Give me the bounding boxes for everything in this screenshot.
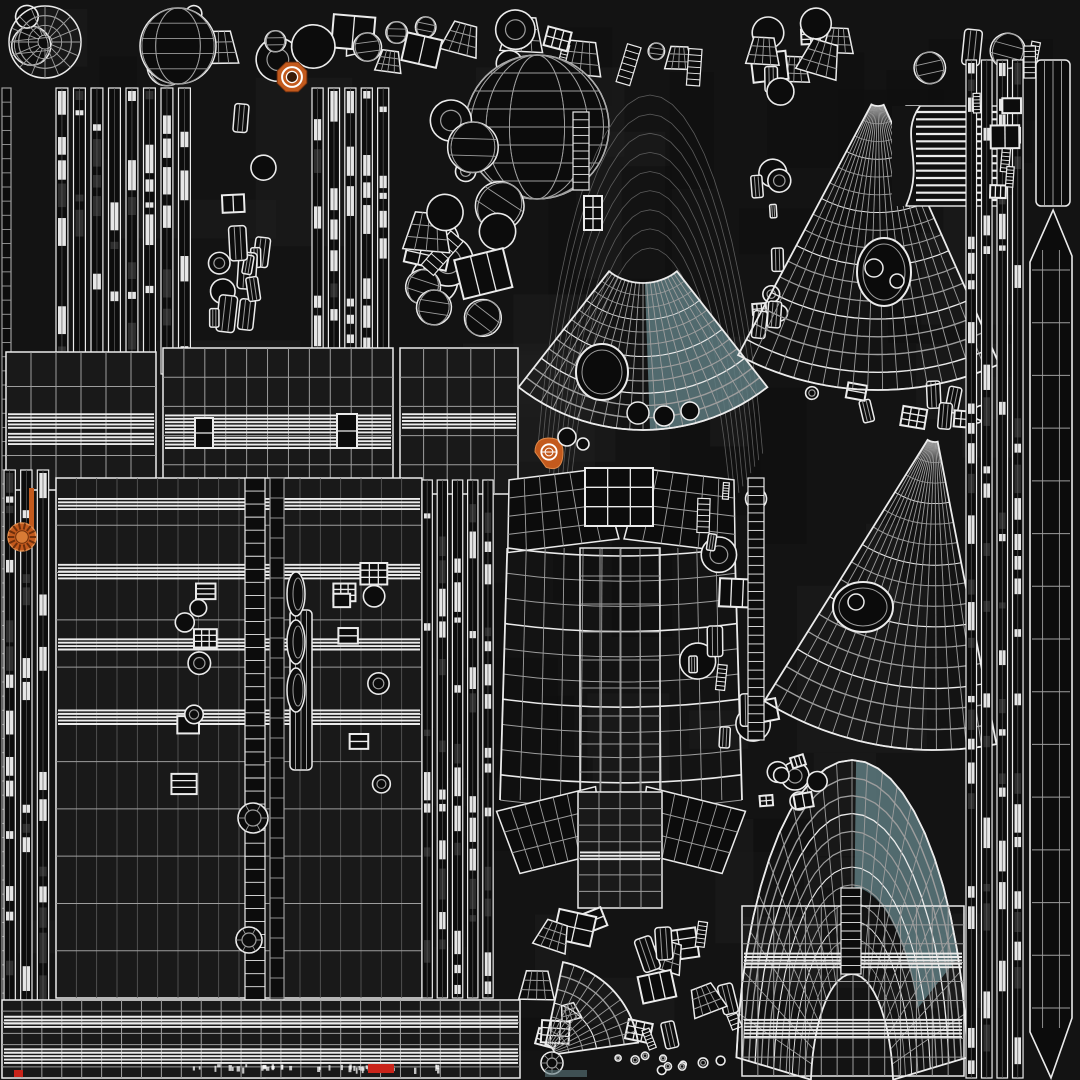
red-mark-a bbox=[368, 1064, 394, 1073]
sphere-part-small bbox=[140, 8, 216, 84]
spine-ladder-b bbox=[270, 478, 284, 1078]
hull-panel-a bbox=[6, 352, 156, 490]
teal-accent-bottom bbox=[545, 1070, 587, 1077]
vessel-rivet-b bbox=[577, 438, 589, 450]
vessel-collar bbox=[585, 468, 653, 526]
uv-atlas-canvas bbox=[0, 0, 1080, 1080]
orange-badge-top bbox=[277, 62, 307, 92]
spine-ladder-a bbox=[245, 478, 265, 1078]
bottom-left-dense-grid bbox=[2, 1000, 520, 1078]
right-of-vessel-ladder bbox=[748, 478, 764, 740]
dome-hatch-ladder bbox=[841, 888, 861, 974]
hull-panel-c bbox=[400, 348, 518, 494]
right-of-hull-strips bbox=[422, 480, 493, 998]
right-capsule bbox=[1036, 60, 1070, 206]
mid-strip-bundle bbox=[312, 88, 389, 372]
vessel-neck bbox=[578, 792, 662, 908]
left-column-strips bbox=[4, 470, 49, 1076]
red-mark-b bbox=[14, 1070, 23, 1077]
spine-crescents bbox=[287, 572, 305, 712]
arc-band-ladder bbox=[573, 112, 589, 190]
orange-badge-left bbox=[8, 523, 36, 551]
hatch-detail-b bbox=[337, 414, 357, 448]
uv-wireframe-atlas bbox=[0, 0, 1080, 1080]
grommet-b bbox=[236, 927, 262, 953]
right-blade bbox=[1030, 210, 1072, 1078]
grommet-a bbox=[238, 803, 268, 833]
vessel-rivet-a bbox=[558, 428, 576, 446]
hatch-detail-a bbox=[195, 418, 213, 448]
arc-band-hatch bbox=[584, 196, 602, 230]
